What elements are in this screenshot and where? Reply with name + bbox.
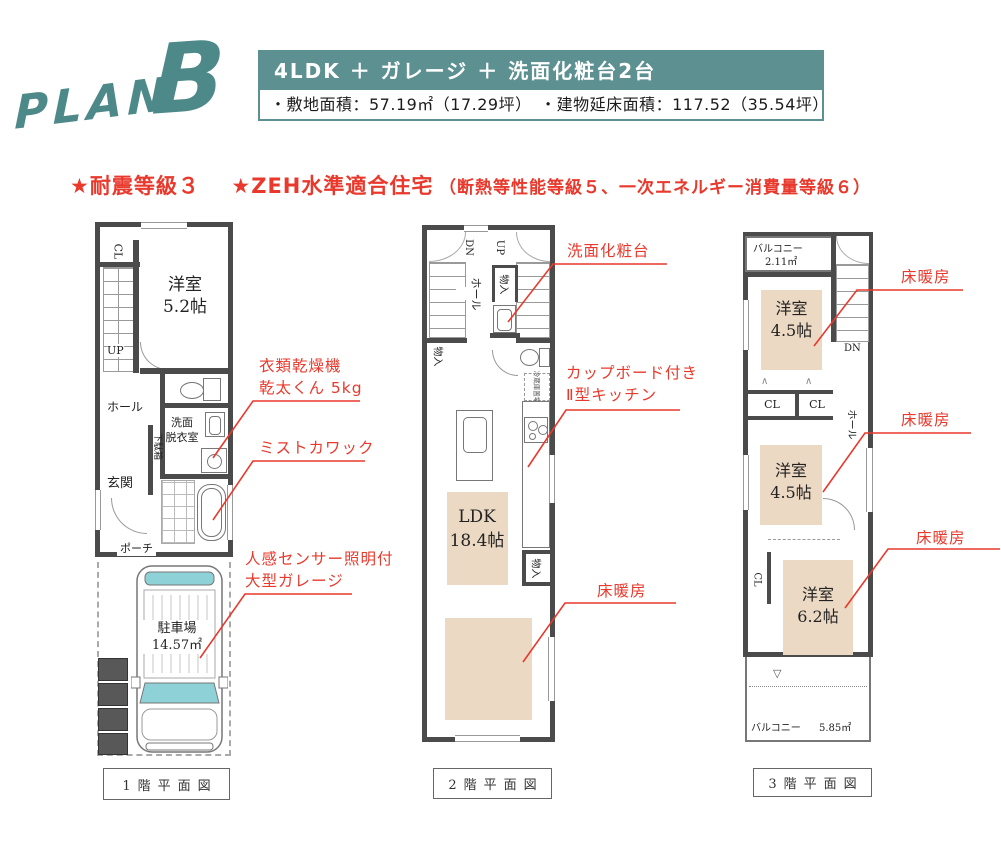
3f-door-chevron: ∧: [805, 376, 812, 387]
feature-zeh-note: （断熱等性能等級５、一次エネルギー消費量等級６）: [439, 178, 871, 198]
1f-wall-bath: [160, 474, 228, 479]
2f-stairs-left-icon: [429, 262, 466, 338]
3f-wall-stairs: [831, 236, 836, 342]
2f-vanity-bowl: [497, 309, 512, 331]
2f-dn-label: DN: [458, 237, 478, 257]
caption-1f: 1階平面図: [103, 768, 230, 800]
1f-top-window: [141, 222, 187, 229]
floorplan-3f: バルコニー 2.11㎡ DN 洋室 4.5帖 ∧ ∧ CL CL ホール 洋室 …: [743, 230, 875, 744]
1f-left-window: [95, 490, 101, 530]
1f-dryer-icon: [201, 448, 227, 473]
1f-retaining-block: [98, 733, 128, 755]
3f-balcony-bottom-label: バルコニー: [751, 719, 801, 734]
feature-quake-grade: ★耐震等級３: [70, 174, 200, 198]
1f-bath-floor-grid: [161, 480, 195, 544]
car-icon: [131, 562, 228, 755]
3f-left-window-1: [743, 300, 749, 350]
3f-balcony-dotted-line: [749, 686, 867, 689]
annotation-kitchen: カップボード付き Ⅱ型キッチン: [566, 362, 698, 406]
3f-cl1-label: CL: [756, 398, 788, 411]
1f-room-label: 洋室 5.2帖: [150, 274, 220, 318]
2f-stove-icon: [524, 417, 548, 443]
3f-hall-label: ホール: [843, 402, 863, 446]
2f-kitchen-sink: [463, 417, 487, 453]
3f-cl2-label: CL: [801, 398, 833, 411]
1f-bathtub-inner: [201, 488, 222, 537]
annotation-floor-heating-2f: 床暖房: [597, 580, 647, 602]
3f-drain-marker: ▽: [773, 667, 781, 680]
3f-cl3-label: CL: [749, 558, 766, 600]
2f-ldk-label: LDK 18.4帖: [442, 505, 512, 553]
1f-retaining-block: [98, 658, 128, 681]
1f-sink-icon: [205, 412, 225, 437]
2f-closet-left-label: 物入: [426, 343, 452, 369]
2f-vanity-icon: [493, 305, 516, 333]
1f-wall-toilet: [160, 403, 228, 408]
2f-kitchen-island-icon: [456, 410, 493, 481]
3f-balcony-bottom-size: 5.85㎡: [819, 719, 851, 734]
2f-floor-heating-area-2: [445, 618, 532, 720]
1f-retaining-block: [98, 683, 128, 706]
floorplan-2f: DN UP ホール 物入 物入 冷蔵庫置場: [422, 225, 555, 742]
1f-porch-label: ポーチ: [117, 540, 156, 556]
header-box: 4LDK ＋ ガレージ ＋ 洗面化粧台2台 ・敷地面積：57.19㎡（17.29…: [258, 50, 824, 121]
3f-right-window: [866, 448, 873, 512]
features-line: ★耐震等級３ ★ZEH水準適合住宅 （断熱等性能等級５、一次エネルギー消費量等級…: [70, 170, 871, 200]
2f-closet-bottom-label: 物入: [524, 555, 550, 581]
3f-wall-room2-top: [748, 416, 833, 420]
3f-wall-cl-row: [748, 390, 833, 394]
3f-wall-cl3: [767, 552, 771, 604]
1f-hall-label: ホール: [107, 398, 143, 415]
annotation-dryer: 衣類乾燥機 乾太くん 5kg: [259, 355, 363, 399]
2f-toilet-icon: [520, 349, 539, 366]
3f-room3-label: 洋室 6.2帖: [783, 584, 853, 628]
annotation-garage: 人感センサー照明付 大型ガレージ: [245, 548, 394, 592]
logo-plan-letter: B: [150, 27, 226, 129]
3f-room2-label: 洋室 4.5帖: [760, 460, 822, 504]
2f-hall-label: ホール: [456, 287, 496, 300]
annotation-floor-heating-3f-3: 床暖房: [916, 527, 966, 549]
1f-dryer-drum: [207, 454, 222, 469]
3f-balcony-top-size: 2.11㎡: [765, 253, 797, 268]
2f-wall-stairsR: [516, 338, 550, 343]
caption-3f: 3階平面図: [753, 768, 872, 797]
1f-right-window: [227, 485, 233, 540]
caption-2f: 2階平面図: [433, 768, 552, 799]
3f-dn-label: DN: [844, 343, 861, 354]
3f-sliding-door-dashed: [768, 539, 840, 542]
3f-door-chevron: ∧: [761, 376, 768, 387]
1f-parking-label: 駐車場 14.57㎡: [142, 620, 212, 654]
3f-left-window-2: [743, 455, 749, 510]
annotation-vanity: 洗面化粧台: [567, 240, 650, 262]
2f-bottom-window: [455, 735, 520, 742]
feature-zeh: ★ZEH水準適合住宅: [231, 174, 433, 198]
2f-closet-top-label: 物入: [492, 273, 518, 295]
logo-plan-text: PLAN: [14, 66, 171, 140]
3f-room1-label: 洋室 4.5帖: [761, 298, 822, 342]
1f-toilet-tank-icon: [203, 378, 221, 401]
3f-stairs-icon: [836, 264, 869, 342]
header-areas: ・敷地面積：57.19㎡（17.29坪） ・建物延床面積：117.52（35.5…: [260, 90, 822, 119]
1f-sink-bowl: [209, 416, 221, 435]
floorplan-1f: CL UP 洋室 5.2帖 ホール 洗面 脱衣室 下駄箱 玄関: [95, 222, 235, 762]
1f-retaining-block: [98, 708, 128, 731]
1f-entrance-label: 玄関: [107, 472, 133, 491]
1f-bathtub-icon: [197, 484, 226, 541]
1f-up-label: UP: [107, 344, 124, 357]
1f-closet-label: CL: [105, 240, 131, 262]
1f-shoebox-label: 下駄箱: [139, 440, 179, 453]
header-title: 4LDK ＋ ガレージ ＋ 洗面化粧台2台: [260, 52, 822, 90]
2f-up-label: UP: [490, 237, 510, 257]
2f-stove-burner: [538, 425, 548, 435]
annotation-mist-kawack: ミストカワック: [259, 437, 375, 459]
flyer-page: PLAN B 4LDK ＋ ガレージ ＋ 洗面化粧台2台 ・敷地面積：57.19…: [0, 0, 1001, 850]
2f-fridge-label: 冷蔵庫置場: [524, 373, 550, 401]
2f-top-window: [464, 225, 488, 232]
annotation-floor-heating-3f-2: 床暖房: [901, 409, 951, 431]
3f-wall-cl-mid: [795, 390, 799, 416]
3f-wall-balcony: [745, 272, 833, 277]
2f-right-window-1: [549, 455, 555, 503]
annotation-floor-heating-3f-1: 床暖房: [901, 266, 951, 288]
2f-stairs-right-icon: [516, 262, 550, 338]
1f-toilet-icon: [180, 382, 204, 399]
1f-wall-room-bottom: [140, 368, 228, 374]
1f-wall-stairs: [133, 240, 139, 373]
2f-stove-burner: [528, 421, 538, 431]
2f-stove-burner: [529, 433, 536, 440]
2f-right-window-2: [548, 637, 555, 701]
2f-toilet-tank-icon: [539, 348, 550, 367]
